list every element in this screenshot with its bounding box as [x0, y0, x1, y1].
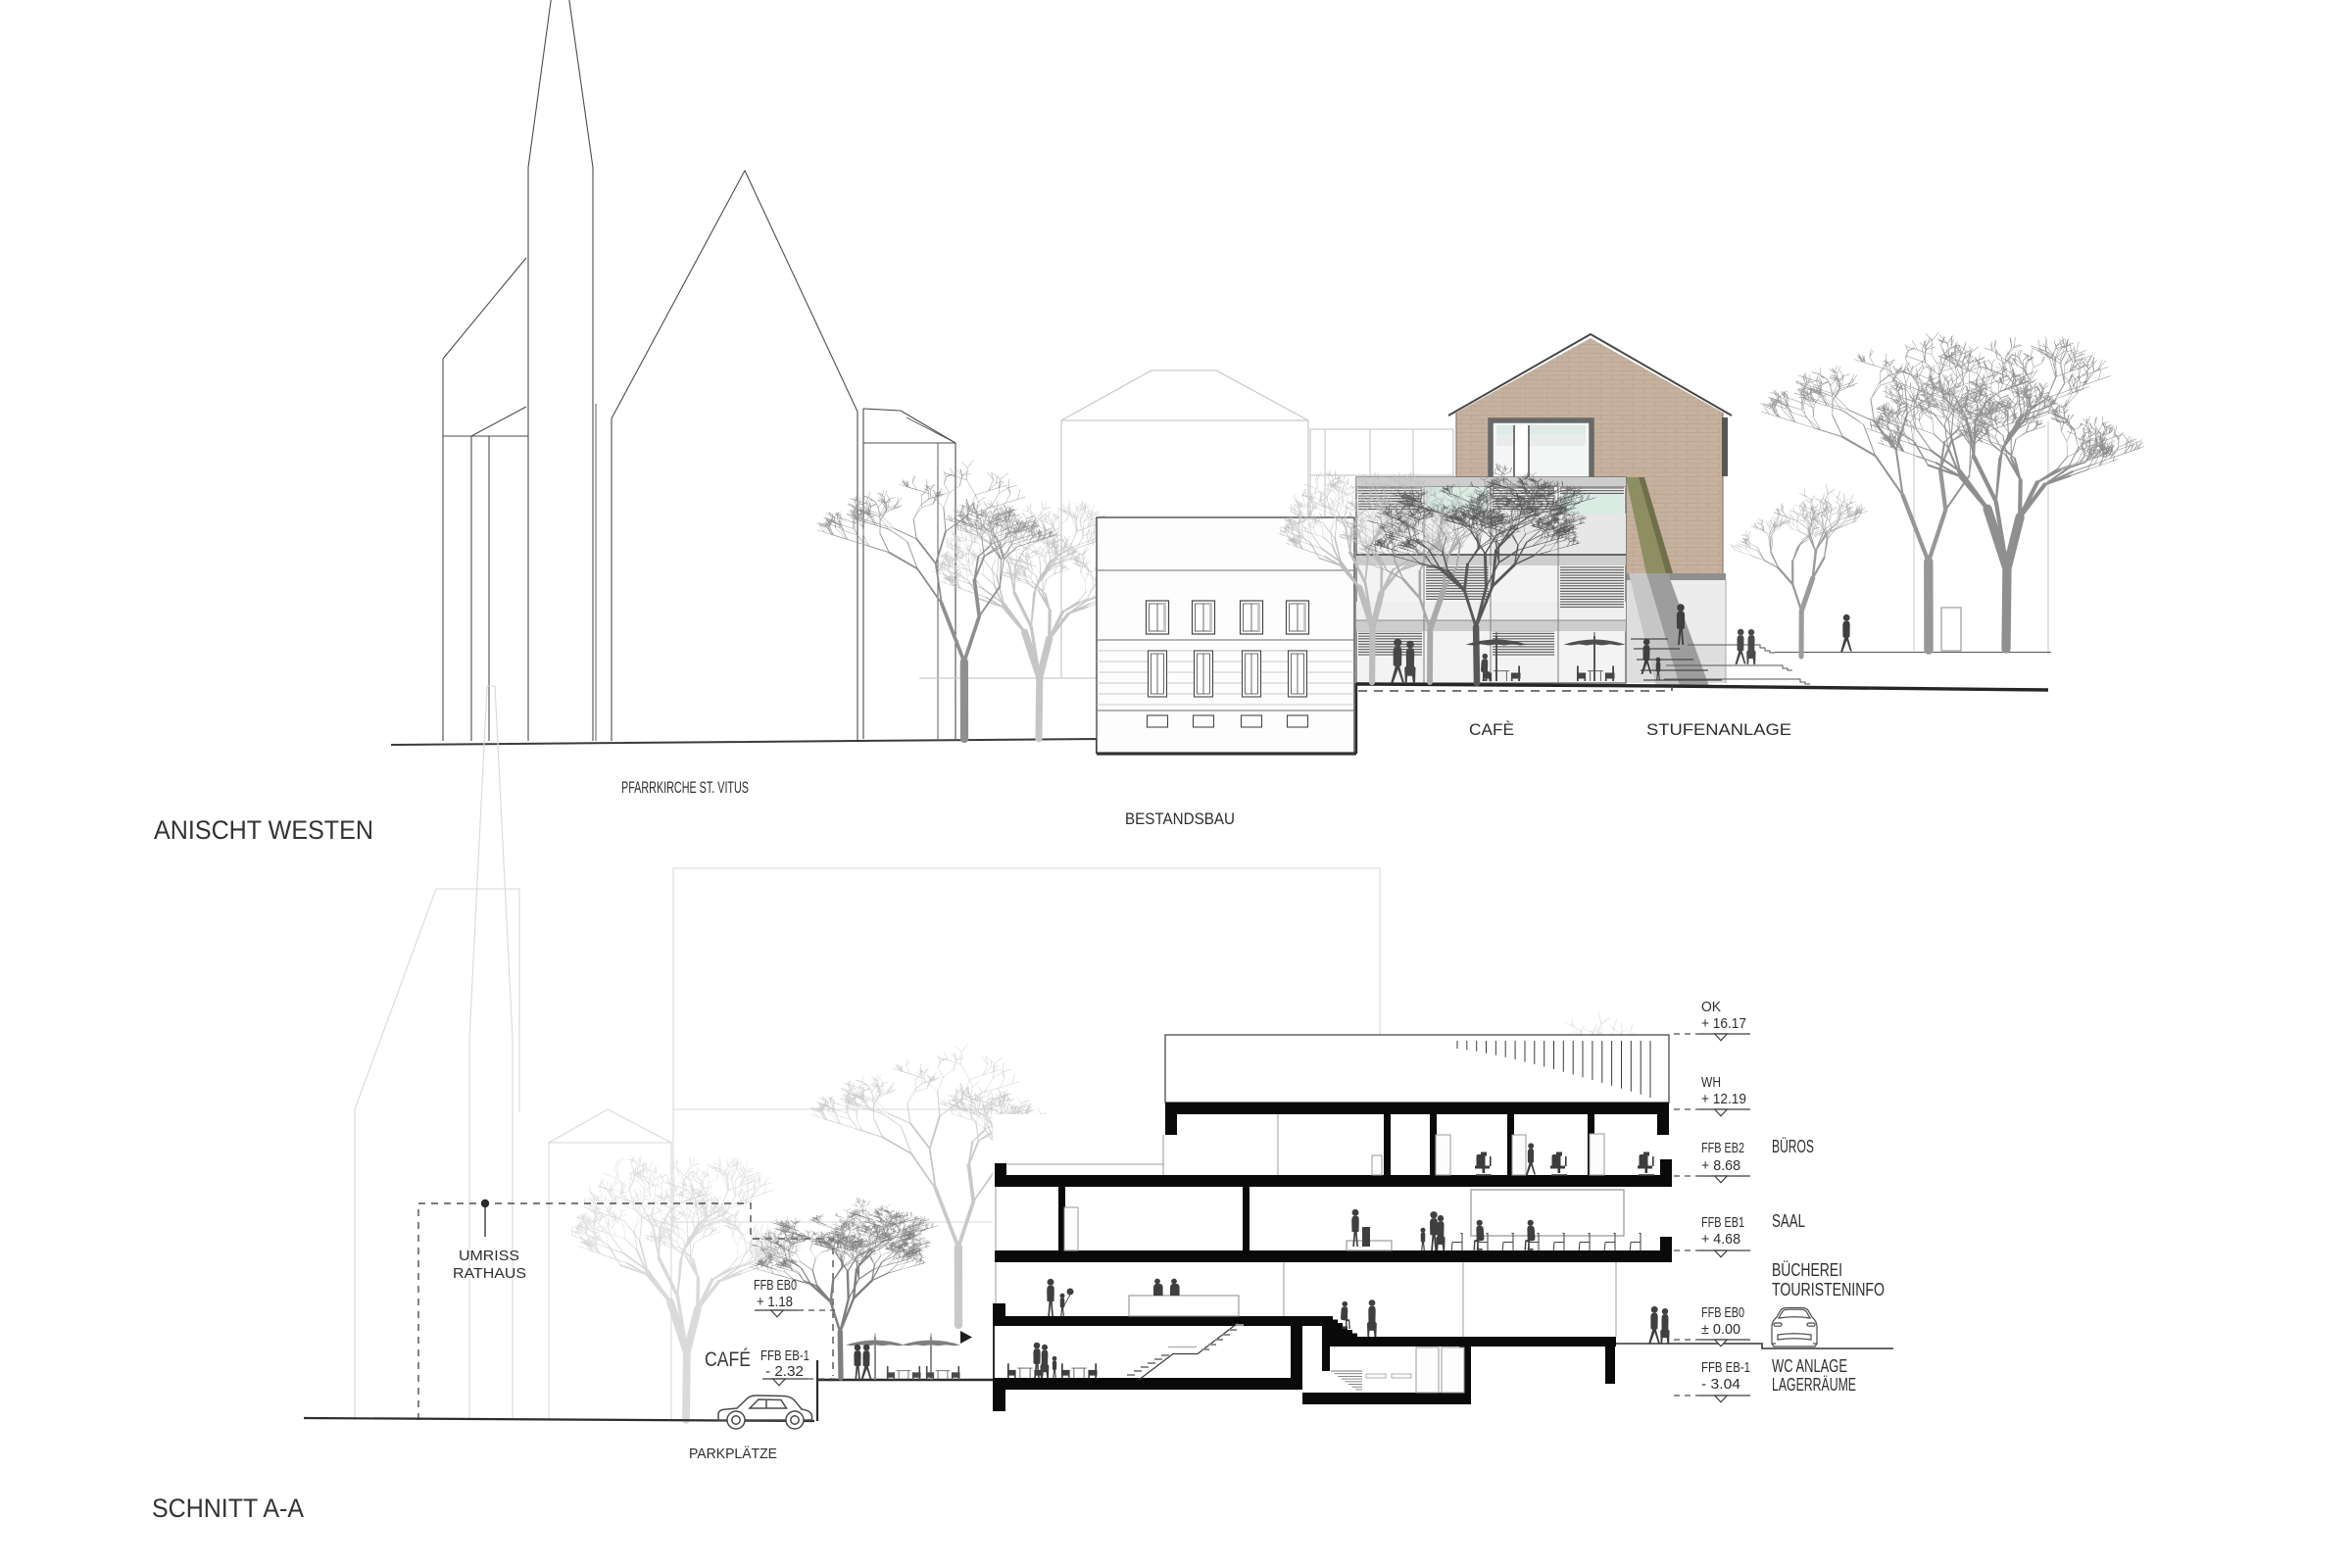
svg-text:PARKPLÄTZE: PARKPLÄTZE	[689, 1445, 777, 1462]
svg-text:SAAL: SAAL	[1772, 1211, 1805, 1231]
svg-text:ANISCHT WESTEN: ANISCHT WESTEN	[154, 815, 373, 845]
svg-text:UMRISS: UMRISS	[459, 1248, 519, 1264]
svg-text:PFARRKIRCHE ST. VITUS: PFARRKIRCHE ST. VITUS	[621, 779, 749, 797]
svg-text:FFB EB-1: FFB EB-1	[1701, 1359, 1750, 1376]
svg-text:+ 12.19: + 12.19	[1701, 1091, 1746, 1107]
svg-text:BÜCHEREI: BÜCHEREI	[1772, 1260, 1842, 1280]
svg-text:WH: WH	[1701, 1074, 1721, 1091]
svg-text:CAFÉ: CAFÉ	[705, 1348, 751, 1371]
svg-text:TOURISTENINFO: TOURISTENINFO	[1772, 1280, 1885, 1299]
svg-text:FFB EB-1: FFB EB-1	[760, 1347, 809, 1364]
svg-text:- 3.04: - 3.04	[1701, 1376, 1740, 1393]
svg-text:CAFÈ: CAFÈ	[1469, 720, 1514, 739]
svg-text:FFB EB0: FFB EB0	[754, 1277, 797, 1294]
svg-text:BÜROS: BÜROS	[1772, 1137, 1814, 1156]
svg-text:+ 8.68: + 8.68	[1701, 1157, 1740, 1174]
svg-text:OK: OK	[1701, 999, 1721, 1015]
svg-text:WC ANLAGE: WC ANLAGE	[1772, 1356, 1847, 1376]
svg-text:+ 16.17: + 16.17	[1701, 1015, 1746, 1032]
svg-text:LAGERRÄUME: LAGERRÄUME	[1772, 1375, 1856, 1395]
svg-text:± 0.00: ± 0.00	[1701, 1321, 1740, 1338]
svg-text:BESTANDSBAU: BESTANDSBAU	[1125, 810, 1235, 828]
svg-text:+ 1.18: + 1.18	[757, 1294, 793, 1310]
svg-text:- 2.32: - 2.32	[765, 1363, 804, 1380]
svg-text:SCHNITT A-A: SCHNITT A-A	[152, 1494, 304, 1523]
svg-text:STUFENANLAGE: STUFENANLAGE	[1646, 721, 1791, 739]
svg-text:FFB EB2: FFB EB2	[1701, 1140, 1744, 1156]
svg-text:FFB EB1: FFB EB1	[1701, 1214, 1744, 1231]
svg-text:RATHAUS: RATHAUS	[453, 1265, 526, 1282]
svg-text:+ 4.68: + 4.68	[1701, 1231, 1740, 1248]
svg-text:FFB EB0: FFB EB0	[1701, 1304, 1744, 1321]
